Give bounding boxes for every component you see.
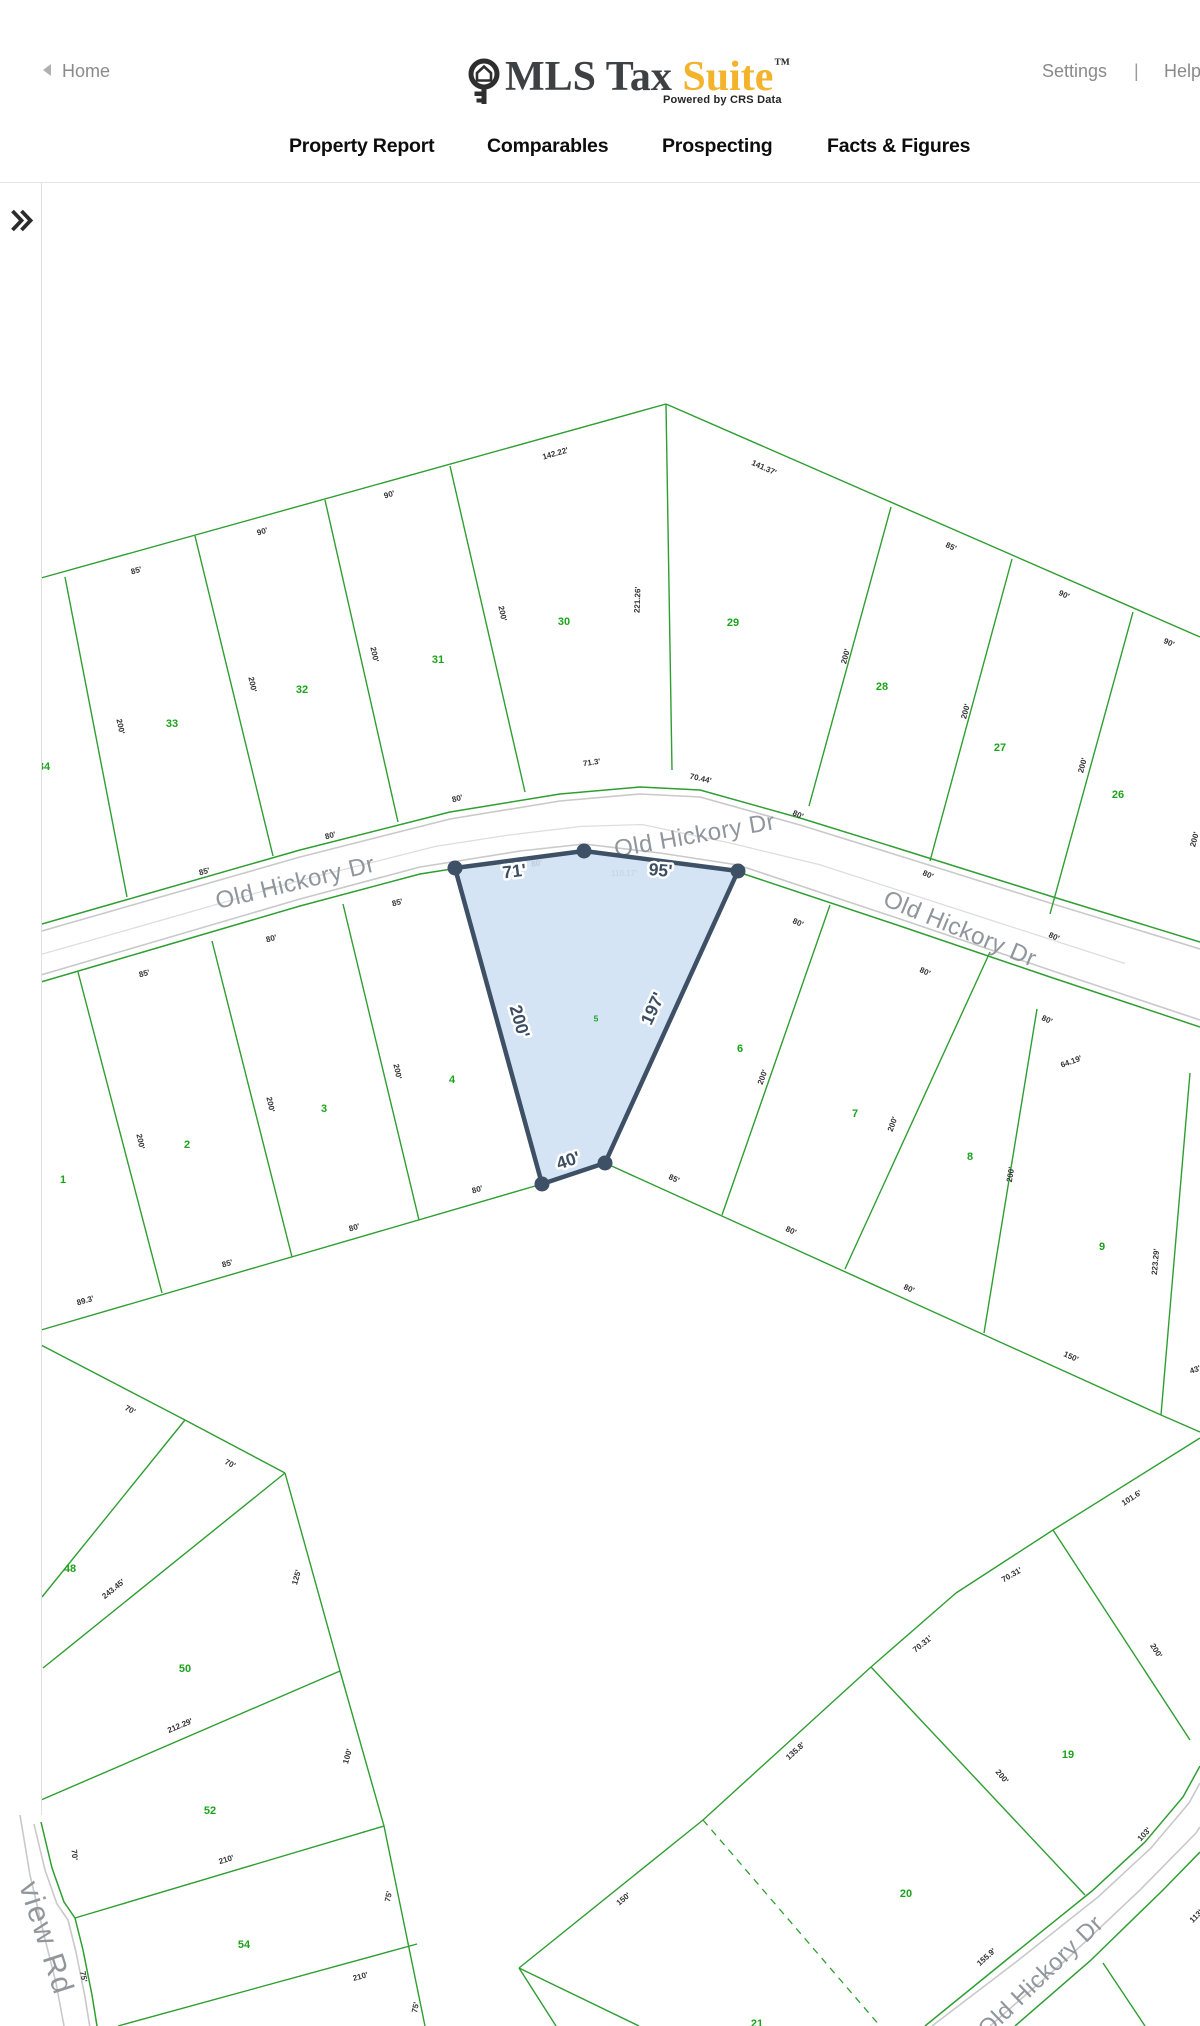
svg-text:8: 8 xyxy=(967,1151,973,1163)
svg-text:71': 71' xyxy=(501,860,527,883)
svg-text:5: 5 xyxy=(594,1014,599,1024)
svg-text:4: 4 xyxy=(449,1074,456,1086)
svg-text:27: 27 xyxy=(994,742,1006,754)
svg-text:20: 20 xyxy=(900,1888,912,1900)
svg-text:33: 33 xyxy=(166,718,178,730)
svg-text:3: 3 xyxy=(321,1103,327,1115)
svg-text:52: 52 xyxy=(204,1805,216,1817)
svg-text:19: 19 xyxy=(1062,1749,1074,1761)
svg-text:75': 75' xyxy=(78,1970,89,1982)
svg-text:221.26': 221.26' xyxy=(633,586,643,613)
svg-text:31: 31 xyxy=(432,654,444,666)
svg-text:6: 6 xyxy=(737,1043,743,1055)
svg-text:9: 9 xyxy=(1099,1241,1105,1253)
svg-text:2: 2 xyxy=(184,1139,190,1151)
svg-text:28: 28 xyxy=(876,681,888,693)
svg-text:70': 70' xyxy=(70,1849,80,1861)
svg-text:7: 7 xyxy=(852,1108,858,1120)
svg-text:95': 95' xyxy=(648,859,673,881)
svg-text:21: 21 xyxy=(751,2018,763,2026)
svg-text:1: 1 xyxy=(60,1174,66,1186)
svg-text:50: 50 xyxy=(179,1663,191,1675)
svg-text:48: 48 xyxy=(64,1563,76,1575)
svg-text:26: 26 xyxy=(1112,789,1124,801)
svg-text:32: 32 xyxy=(296,684,308,696)
svg-text:30: 30 xyxy=(558,616,570,628)
svg-text:54: 54 xyxy=(238,1939,251,1951)
svg-text:29: 29 xyxy=(727,617,739,629)
